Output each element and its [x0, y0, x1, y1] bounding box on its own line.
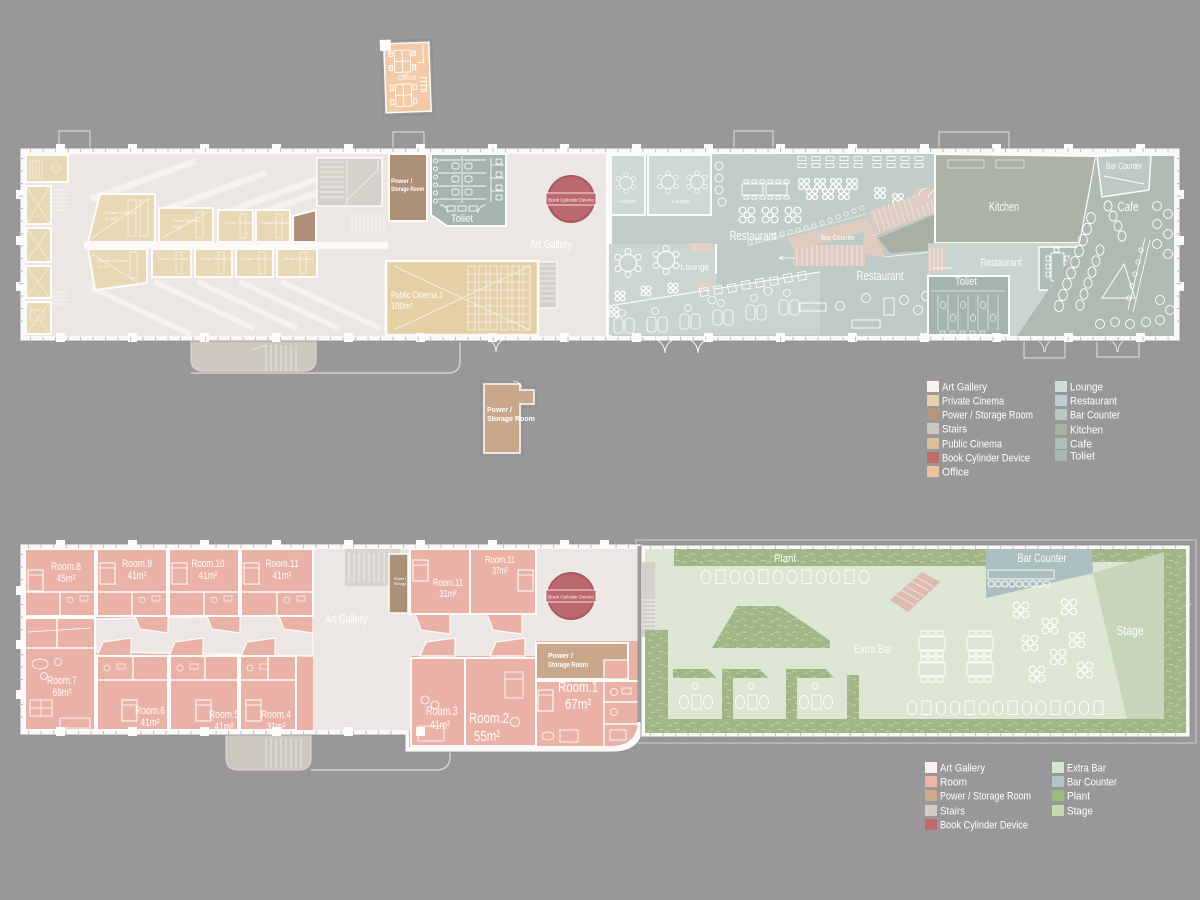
svg-text:Restaurant: Restaurant [1070, 396, 1117, 408]
svg-text:Private Cinema.4: Private Cinema.4 [158, 256, 189, 261]
svg-text:41m²: 41m² [430, 718, 450, 732]
svg-text:Public Cinema: Public Cinema [942, 439, 1003, 451]
svg-text:Art Gallery: Art Gallery [530, 239, 572, 251]
svg-text:Room.11: Room.11 [266, 558, 299, 570]
svg-text:Power /: Power / [487, 407, 512, 414]
svg-text:Room.8: Room.8 [51, 561, 81, 573]
svg-text:Extra Bar: Extra Bar [854, 642, 892, 656]
svg-text:Restaurant: Restaurant [730, 229, 777, 243]
svg-text:Toliet: Toliet [451, 213, 473, 225]
svg-text:17.6m²: 17.6m² [98, 264, 111, 269]
svg-text:Room.11: Room.11 [433, 578, 463, 589]
svg-text:37m²: 37m² [492, 566, 508, 577]
svg-text:41m²: 41m² [215, 721, 234, 733]
svg-text:Private Cinema.7: Private Cinema.7 [172, 218, 203, 223]
svg-text:Public Cinema.1: Public Cinema.1 [391, 290, 443, 300]
svg-text:Stairs: Stairs [942, 424, 967, 436]
svg-text:Private Cinema.1: Private Cinema.1 [283, 256, 314, 261]
svg-text:Plant: Plant [1067, 791, 1090, 803]
svg-text:Room: Room [940, 777, 967, 789]
svg-text:Room.11: Room.11 [485, 555, 515, 566]
svg-text:Room.6: Room.6 [135, 705, 165, 717]
svg-text:Restaurant: Restaurant [981, 257, 1022, 269]
svg-text:Power /: Power / [394, 577, 406, 581]
svg-text:Cafe: Cafe [1118, 200, 1139, 214]
svg-text:Book Cylinder Device: Book Cylinder Device [942, 453, 1030, 465]
svg-text:41m²: 41m² [141, 717, 160, 729]
svg-text:Power / Storage Room: Power / Storage Room [940, 791, 1031, 803]
svg-text:Power /: Power / [548, 653, 573, 660]
svg-text:Book Cylinder Device: Book Cylinder Device [548, 198, 594, 204]
svg-text:39.6m²: 39.6m² [105, 216, 118, 221]
svg-text:Bar Counter: Bar Counter [1106, 161, 1142, 171]
svg-text:41m²: 41m² [128, 570, 147, 582]
svg-text:Book Cylinder Device: Book Cylinder Device [940, 820, 1028, 832]
svg-text:Lounge: Lounge [681, 262, 710, 273]
svg-text:Room.5: Room.5 [209, 709, 239, 721]
svg-text:100m²: 100m² [391, 301, 413, 311]
svg-text:Private Cinema.6: Private Cinema.6 [105, 210, 136, 215]
svg-text:67m²: 67m² [565, 696, 591, 713]
svg-text:Restaurant: Restaurant [857, 269, 904, 283]
svg-text:Power /: Power / [391, 179, 413, 185]
svg-text:Lounge: Lounge [618, 199, 636, 205]
svg-text:69m²: 69m² [53, 687, 72, 699]
svg-text:Private Cinema.8: Private Cinema.8 [224, 220, 255, 225]
svg-text:Storage Room: Storage Room [548, 662, 588, 669]
svg-text:Art Gallery: Art Gallery [940, 763, 985, 775]
svg-text:Extra Bar: Extra Bar [1067, 763, 1106, 775]
svg-text:Plant: Plant [774, 553, 796, 565]
svg-text:Room.10: Room.10 [192, 558, 225, 570]
svg-text:Bar Counter: Bar Counter [821, 233, 855, 242]
svg-text:Private Cinema.2: Private Cinema.2 [241, 256, 272, 261]
svg-text:Art Gallery: Art Gallery [942, 382, 987, 394]
svg-text:41m²: 41m² [172, 224, 182, 229]
svg-text:41m²: 41m² [199, 570, 218, 582]
svg-text:41m²: 41m² [273, 570, 292, 582]
svg-text:Storage Room: Storage Room [391, 187, 424, 193]
svg-text:Bar Counter: Bar Counter [1070, 410, 1120, 422]
svg-text:Office: Office [942, 467, 969, 479]
svg-text:Bar Counter: Bar Counter [1018, 553, 1067, 565]
svg-text:Power / Storage Room: Power / Storage Room [942, 410, 1033, 422]
svg-text:Room.4: Room.4 [261, 709, 291, 721]
svg-text:Room.7: Room.7 [47, 675, 77, 687]
svg-text:Lounge: Lounge [672, 199, 690, 205]
svg-text:Lounge: Lounge [1070, 382, 1103, 394]
svg-text:Storage Room: Storage Room [487, 416, 535, 423]
svg-text:Stage: Stage [1117, 624, 1144, 638]
svg-text:Room.1: Room.1 [558, 679, 598, 696]
svg-text:Toliet: Toliet [955, 276, 977, 288]
svg-text:Private Cinema.3: Private Cinema.3 [200, 256, 231, 261]
svg-text:Book Cylinder Device: Book Cylinder Device [548, 595, 594, 601]
svg-text:Room.9: Room.9 [122, 558, 152, 570]
svg-text:Kitchen: Kitchen [989, 200, 1019, 214]
svg-text:Stage: Stage [1067, 806, 1093, 818]
svg-text:31m²: 31m² [439, 589, 457, 600]
svg-text:Kitchen: Kitchen [1070, 425, 1103, 437]
svg-text:Cafe: Cafe [1070, 439, 1092, 451]
svg-text:Art Gallery: Art Gallery [325, 614, 367, 626]
svg-text:Toliet: Toliet [1070, 451, 1095, 463]
svg-text:Stairs: Stairs [940, 806, 965, 818]
svg-text:55m²: 55m² [474, 728, 500, 745]
svg-text:Private Cinema.5: Private Cinema.5 [98, 258, 129, 263]
svg-text:Office: Office [397, 73, 417, 83]
svg-text:45m²: 45m² [57, 573, 76, 585]
svg-text:Storage: Storage [394, 582, 406, 586]
svg-text:Room.2: Room.2 [469, 710, 509, 727]
svg-text:Bar Counter: Bar Counter [1067, 777, 1117, 789]
svg-text:Private Cinema.9: Private Cinema.9 [261, 220, 292, 225]
svg-text:Private Cinema: Private Cinema [942, 396, 1005, 408]
